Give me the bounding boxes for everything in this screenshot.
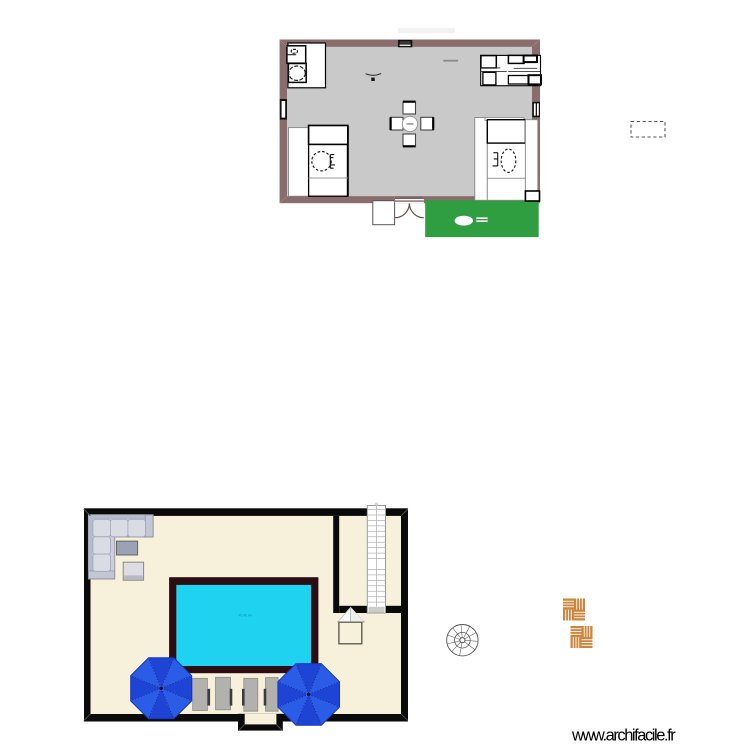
svg-text:www.archifacile.fr: www.archifacile.fr (571, 727, 676, 745)
svg-text:40,46 m²: 40,46 m² (238, 614, 252, 618)
